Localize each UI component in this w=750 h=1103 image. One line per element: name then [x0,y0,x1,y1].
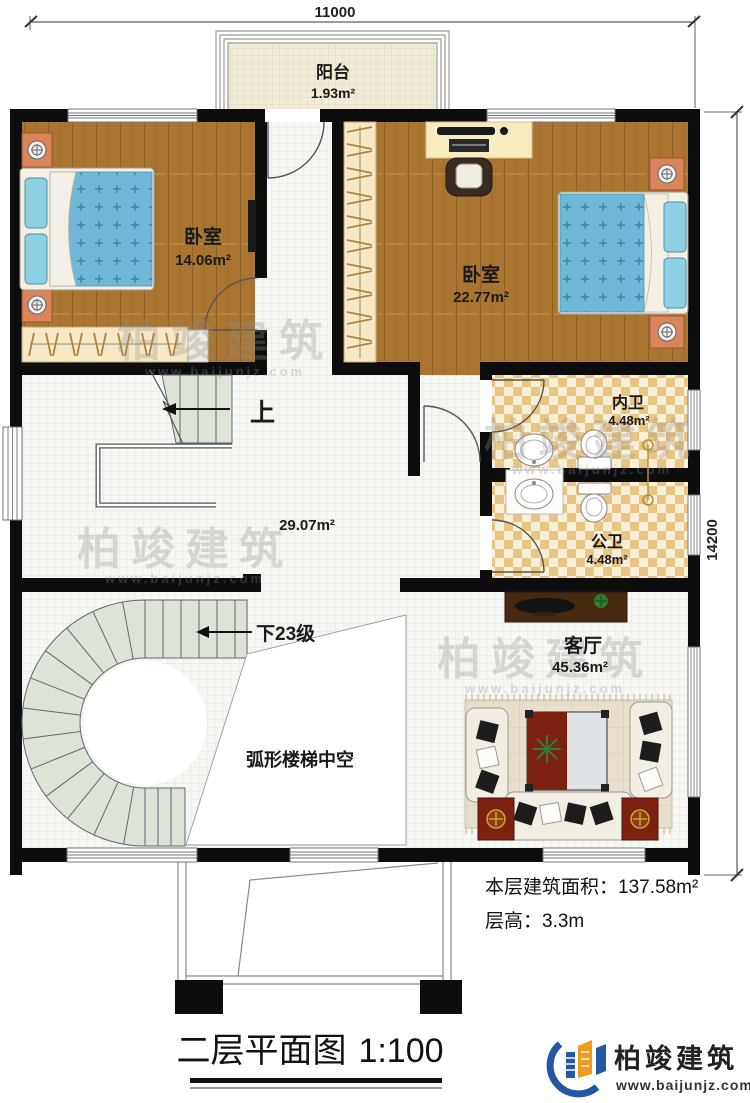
watermark-text: 柏竣建筑 [117,317,333,366]
watermark-text: 柏竣建筑 [77,525,293,574]
tv-cabinet [505,592,627,622]
watermark-url: www.baijunjz.com [464,681,625,696]
window-bottom-3 [543,848,645,862]
sofa-right [630,702,672,798]
bed-small [20,168,154,290]
bedroom-small-label: 卧室 [184,225,222,248]
sink-shared [515,479,553,509]
ensuite-label: 内卫 [612,393,644,412]
logo-text: 柏竣建筑 [614,1043,738,1074]
balcony-area: 1.93m² [311,85,356,101]
side-table-right [622,798,658,840]
desk [426,122,532,158]
balcony-door-opening [265,109,320,122]
ensuite-area: 4.48m² [608,413,650,428]
shared-bath-area: 4.48m² [586,552,628,567]
bedroom-small-area: 14.06m² [175,252,231,269]
dimension-right: 14200 [704,106,743,881]
title-block: 二层平面图1:100 [176,1032,443,1089]
stairs-down-label: 下23级 [256,622,315,645]
floor-area-note: 本层建筑面积：137.58m² [485,876,698,898]
watermark-url: www.baijunjz.com [104,571,265,586]
window-left-hall [3,427,22,520]
wardrobe-large [344,122,376,362]
living-area: 45.36m² [552,659,608,676]
dimension-height-label: 14200 [704,519,721,561]
window-top-bedroom-small [68,109,197,122]
dimension-width-label: 11000 [315,4,356,21]
hall-area: 29.07m² [279,517,335,534]
watermark-text: 柏竣建筑 [437,635,653,684]
bedroom-large-area: 22.77m² [453,289,509,306]
watermark-url: www.baijunjz.com [144,364,305,379]
window-bottom-1 [67,848,197,862]
pillow [25,234,47,284]
watermark-text: 柏竣建筑 [484,416,700,465]
pillow [664,258,686,308]
logo-website: www.baijunjz.com [615,1077,750,1093]
stairs-up-label: 上 [250,399,275,427]
window-right-living [688,647,700,797]
title-underline-thin [190,1087,442,1089]
window-top-bedroom-large [487,109,615,122]
sofa-left [466,708,508,802]
sofa-bottom [505,792,632,840]
balcony-label: 阳台 [316,62,350,82]
notes: 本层建筑面积：137.58m² 层高：3.3m [485,876,698,932]
side-table-left [478,798,514,840]
logo-icon [550,1040,606,1094]
coffee-table [525,710,609,792]
desk-chair [446,158,492,196]
table-plant [533,735,561,763]
pillow [664,202,686,252]
window-right-shared-bath [688,495,700,555]
brand-logo: 柏竣建筑 www.baijunjz.com [550,1040,750,1094]
porch-outline [175,862,462,1014]
floor-height-note: 层高：3.3m [485,910,584,932]
pillow [25,178,47,228]
shared-bath-label: 公卫 [591,533,623,551]
title-underline-thick [190,1078,442,1083]
page-title: 二层平面图1:100 [176,1032,443,1070]
bed-large [558,192,688,314]
porch-column [420,980,462,1014]
porch-column [175,980,223,1014]
floor-plan-page: 11000 14200 柏竣建筑 www.baijunjz.com 柏竣建筑 w… [0,0,750,1103]
floor-plan-drawing: 11000 14200 柏竣建筑 www.baijunjz.com 柏竣建筑 w… [0,0,750,1103]
window-bottom-2 [290,848,378,862]
watermark-url: www.baijunjz.com [511,462,672,477]
stair-void-label: 弧形楼梯中空 [246,749,354,770]
wall-tv [248,200,256,252]
bedroom-large-label: 卧室 [462,263,500,286]
living-label: 客厅 [564,634,602,657]
